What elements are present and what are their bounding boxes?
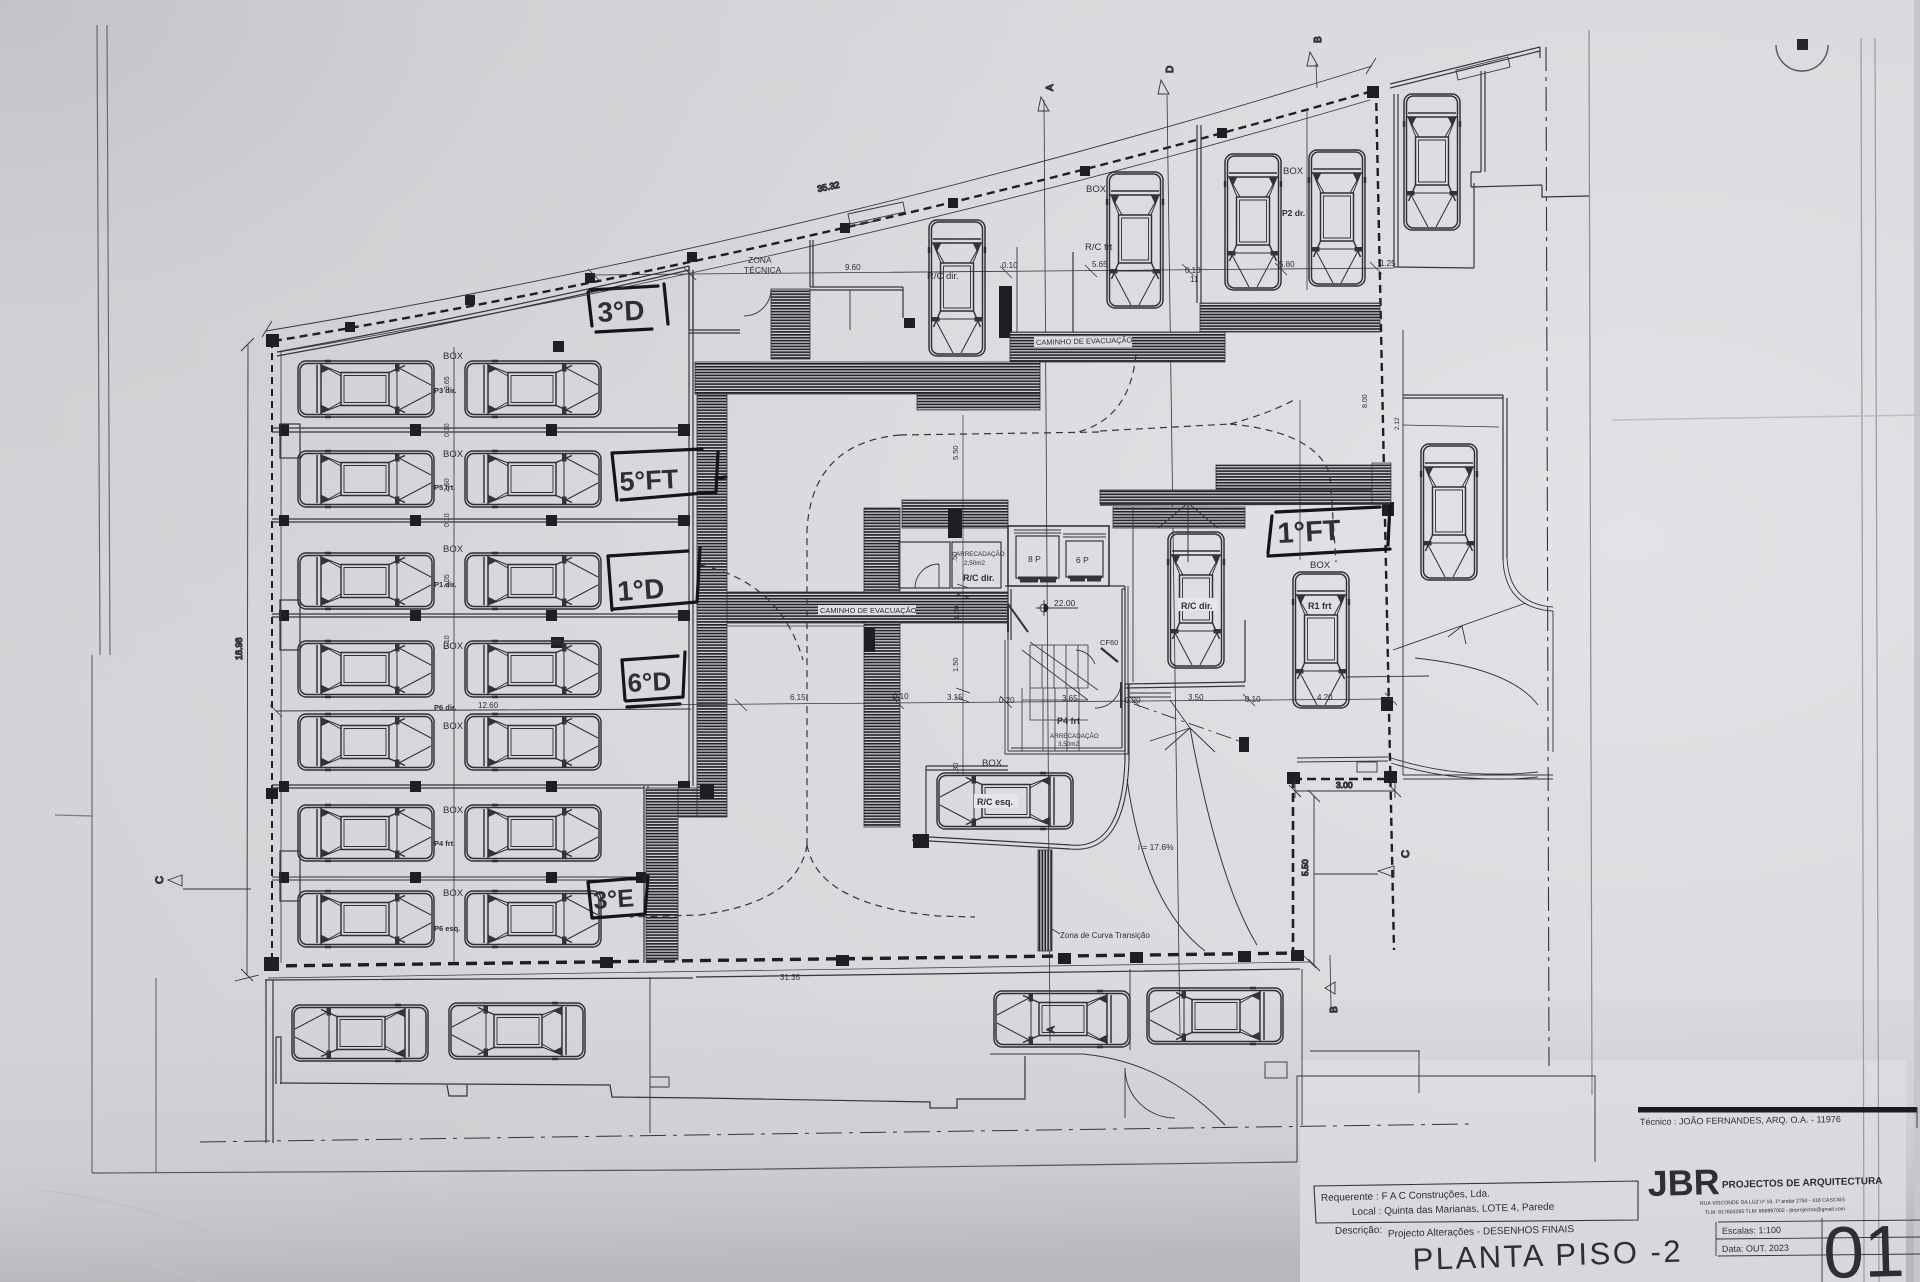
svg-text:1.50: 1.50 [951,657,960,672]
svg-text:1°FT: 1°FT [1277,515,1342,550]
svg-text:R/C dir.: R/C dir. [1181,601,1213,611]
svg-text:P6 esq.: P6 esq. [434,924,460,933]
svg-text:5.50: 5.50 [1300,859,1310,876]
svg-text:Data: OUT. 2023: Data: OUT. 2023 [1722,1243,1789,1254]
svg-text:8 P: 8 P [1028,554,1041,564]
svg-text:BOX: BOX [443,449,464,460]
svg-text:5.50: 5.50 [951,445,960,460]
svg-text:8.00: 8.00 [1362,394,1369,408]
svg-text:i = 17.6%: i = 17.6% [1138,842,1174,852]
svg-text:6.15: 6.15 [790,693,806,702]
svg-text:1°D: 1°D [616,573,665,607]
svg-text:0.10: 0.10 [1185,266,1201,275]
svg-text:BOX: BOX [443,888,464,899]
svg-text:Descrição:: Descrição: [1335,1225,1383,1237]
svg-text:R/C frt: R/C frt [1085,242,1113,253]
svg-text:3°D: 3°D [597,295,646,328]
svg-text:2,50m2: 2,50m2 [964,560,986,567]
svg-text:BOX: BOX [443,351,464,362]
svg-text:3.65: 3.65 [444,376,451,390]
svg-text:18.98: 18.98 [234,637,244,660]
svg-text:C: C [1400,850,1412,858]
svg-text:9.60: 9.60 [845,263,861,272]
svg-text:11: 11 [1190,275,1199,284]
svg-text:.80: .80 [951,763,960,773]
svg-text:2.12: 2.12 [1394,417,1401,430]
svg-text:.50: .50 [950,552,959,562]
svg-text:B: B [1329,1006,1340,1013]
svg-text:R1 frt: R1 frt [1308,601,1332,611]
svg-text:BOX: BOX [1310,560,1331,571]
svg-text:0.20: 0.20 [999,696,1015,705]
svg-text:JBR: JBR [1647,1161,1720,1204]
svg-text:6°D: 6°D [627,666,672,698]
svg-text:3,50m2: 3,50m2 [1058,741,1080,748]
svg-text:0.10: 0.10 [444,635,451,649]
svg-text:P2 dr.: P2 dr. [1282,208,1305,218]
svg-text:P4 frt: P4 frt [1057,716,1080,726]
svg-text:D: D [1165,66,1176,73]
svg-text:3°E: 3°E [592,884,634,915]
svg-text:A: A [1045,84,1056,91]
svg-text:R/C dir.: R/C dir. [927,271,959,282]
svg-text:A: A [1046,1026,1057,1033]
svg-text:BOX: BOX [982,758,1003,769]
svg-text:R/C esq.: R/C esq. [977,797,1013,807]
svg-text:0.10: 0.10 [1002,261,1018,270]
svg-text:BOX: BOX [443,721,464,732]
svg-text:0.10: 0.10 [1245,695,1261,704]
svg-text:P6 dir.: P6 dir. [434,703,457,712]
svg-text:0.10: 0.10 [444,423,451,437]
svg-text:0.10: 0.10 [444,513,451,527]
svg-text:3.15: 3.15 [947,693,963,702]
svg-text:R/C dir.: R/C dir. [963,573,995,583]
svg-text:ZONA: ZONA [748,255,772,265]
svg-text:5.65: 5.65 [1092,260,1108,269]
svg-text:6 P: 6 P [1076,555,1089,565]
svg-text:3.50: 3.50 [1188,693,1204,702]
svg-text:2.50: 2.50 [444,478,451,492]
svg-text:B: B [1313,36,1324,43]
svg-text:3.65: 3.65 [1062,694,1078,703]
svg-text:BOX: BOX [1086,184,1107,195]
svg-text:1.50: 1.50 [952,605,961,620]
svg-text:31.35: 31.35 [780,973,801,982]
svg-text:CF60: CF60 [1100,638,1118,647]
svg-text:BOX: BOX [1283,166,1304,177]
svg-text:Zona de Curva Transição: Zona de Curva Transição [1060,931,1150,940]
svg-text:12.60: 12.60 [478,701,499,710]
svg-text:Escalas: 1:100: Escalas: 1:100 [1722,1225,1781,1236]
svg-text:5.80: 5.80 [1279,260,1295,269]
svg-text:3.00: 3.00 [1336,780,1353,790]
svg-text:BOX: BOX [443,805,464,816]
svg-text:5°FT: 5°FT [619,464,680,497]
svg-text:C: C [154,876,166,884]
svg-text:CAMINHO DE EVACUAÇÃO: CAMINHO DE EVACUAÇÃO [820,606,917,615]
svg-text:0.10: 0.10 [893,692,909,701]
svg-text:ARRECADAÇÃO: ARRECADAÇÃO [1050,731,1099,740]
svg-text:P4 frt.: P4 frt. [434,839,455,848]
svg-text:01: 01 [1822,1211,1905,1282]
svg-text:3.05: 3.05 [444,574,451,588]
svg-text:BOX: BOX [443,544,464,555]
svg-text:22.00: 22.00 [1054,598,1076,608]
